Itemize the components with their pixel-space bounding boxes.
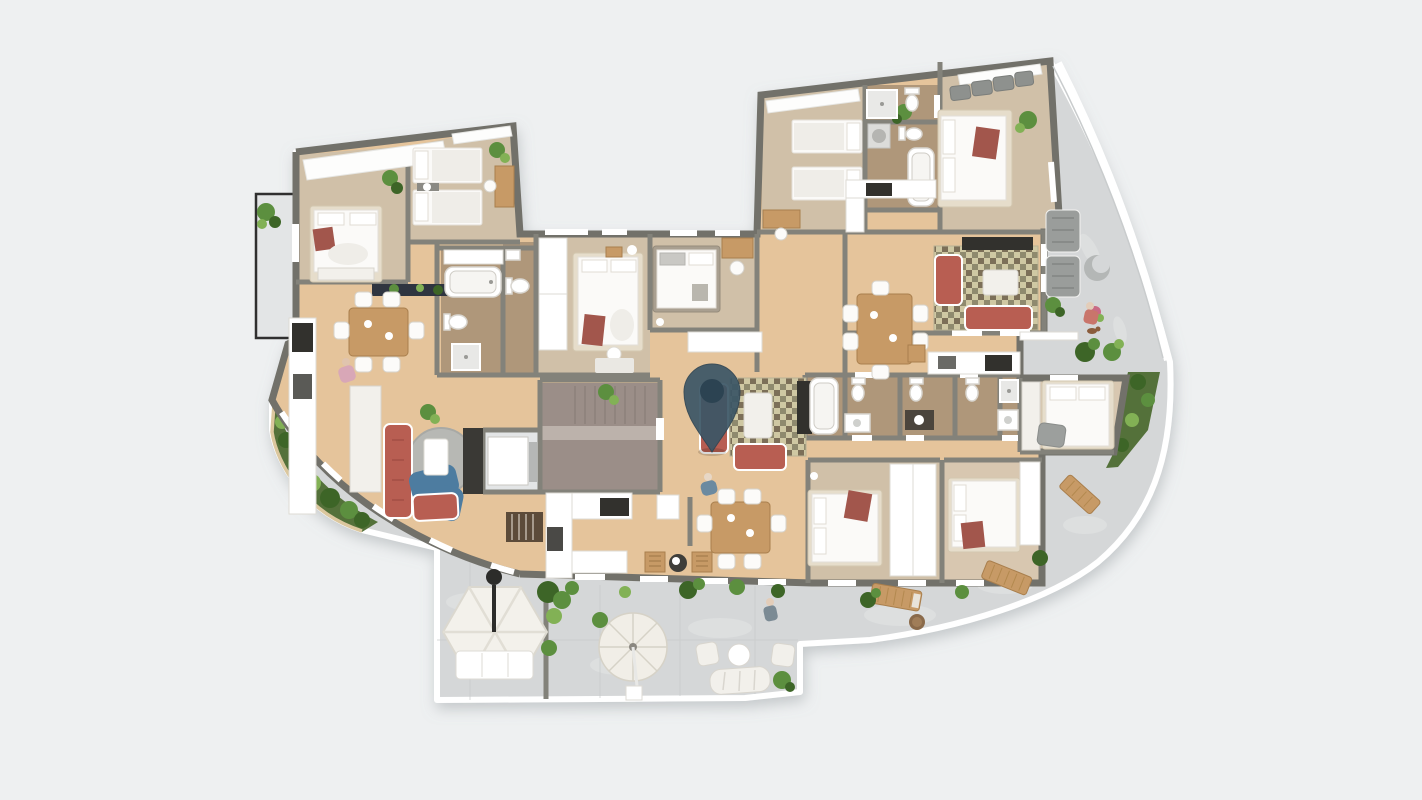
tv-wall-panel (463, 428, 483, 494)
washbasin (506, 250, 520, 260)
coffee-table (983, 270, 1018, 295)
desk (722, 238, 753, 258)
planter-bench (1020, 332, 1078, 340)
potted-plant (955, 585, 969, 599)
dining-table (349, 308, 408, 356)
lamp (423, 183, 431, 191)
desk (495, 166, 514, 207)
cooktop (600, 498, 629, 516)
bathtub (810, 378, 838, 434)
balcony-door (292, 224, 299, 262)
outdoor-armchair (771, 643, 796, 668)
elevator (483, 432, 540, 492)
wardrobe (1020, 462, 1040, 545)
bedroom-mid-right (1022, 381, 1114, 450)
bed (792, 120, 862, 153)
stool (908, 345, 925, 362)
lamp (627, 245, 637, 255)
throw (692, 284, 708, 301)
potted-plant (1032, 550, 1048, 566)
desk-chair (775, 228, 787, 240)
washbasin (998, 410, 1018, 430)
lamp (656, 318, 664, 326)
core-entry-door (656, 418, 664, 440)
kitchen-island (350, 386, 381, 492)
dining-table (711, 502, 770, 553)
toilet (852, 378, 865, 401)
cooktop (292, 323, 313, 352)
sofa (965, 306, 1032, 330)
desk-chair (730, 261, 744, 275)
kitchen-counter-return (572, 551, 627, 573)
washbasin (845, 414, 870, 432)
sofa (384, 424, 412, 518)
cooktop (985, 355, 1012, 371)
bed (938, 110, 1012, 207)
bathtub (445, 267, 501, 297)
hall-closet (688, 332, 762, 352)
sink (293, 374, 312, 399)
toilet (905, 88, 919, 111)
toilet (966, 378, 979, 401)
coffee-table (424, 439, 448, 475)
tv-sideboard (962, 237, 1033, 250)
washer (868, 124, 890, 148)
outdoor-table (728, 644, 750, 666)
bed (413, 190, 482, 225)
gazebo-sofa (456, 651, 533, 679)
bedside-rug (595, 358, 634, 373)
floor-plan-render (0, 0, 1422, 800)
bed (808, 490, 882, 566)
loveseat (412, 493, 458, 521)
shower (1000, 380, 1018, 402)
kitchen-cabinet (846, 198, 864, 232)
bed (948, 478, 1020, 552)
sofa (935, 255, 962, 305)
outdoor-armchair (695, 641, 720, 666)
stair-landing (540, 426, 660, 440)
bed (413, 148, 482, 183)
desk-chair (484, 180, 496, 192)
washbasin-dark (905, 410, 934, 430)
gazebo-pole (486, 569, 502, 585)
staircase-down (506, 512, 543, 542)
desk (763, 210, 800, 228)
cooktop (866, 183, 892, 196)
toilet (910, 378, 923, 401)
bed (310, 206, 382, 282)
lamp (810, 472, 818, 480)
umbrella-base (626, 686, 642, 700)
loveseat (734, 444, 786, 470)
bed (653, 246, 720, 312)
toilet (444, 314, 467, 330)
bed (573, 253, 643, 351)
toilet (899, 127, 922, 140)
vanity (444, 250, 503, 264)
armchair (1037, 422, 1067, 448)
chaise-lounge (744, 393, 772, 438)
toilet (506, 278, 529, 294)
oven (547, 527, 563, 551)
floor-plan-stage (0, 0, 1422, 800)
basket (606, 247, 622, 257)
sink (938, 356, 956, 369)
dining-table (857, 294, 912, 364)
bistro-set (645, 552, 712, 572)
map-pin-hole (700, 379, 724, 403)
fridge (657, 495, 679, 519)
living-area-right (934, 237, 1038, 330)
shower (452, 344, 480, 370)
